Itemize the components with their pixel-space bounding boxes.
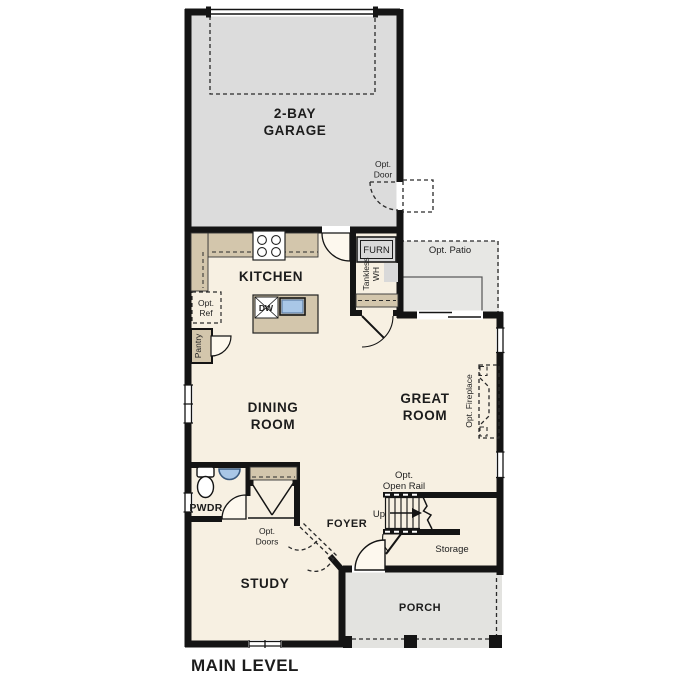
floor-plan: DW Opt. Ref Pantry FURN Tankless WH [0, 0, 687, 687]
dining-window [184, 385, 194, 423]
utility-shelf [356, 294, 398, 307]
porch-post-mid [404, 635, 417, 648]
utility-closet: FURN Tankless WH [356, 237, 398, 307]
toilet [197, 467, 214, 498]
opt-open-rail-label-line2: Open Rail [383, 481, 425, 492]
plan-title: MAIN LEVEL [191, 656, 299, 675]
opt-door-label-line2: Door [374, 170, 393, 180]
island-sink [280, 298, 305, 315]
great-room-window-lower [496, 452, 505, 478]
study-window [248, 640, 282, 648]
dishwasher-label: DW [259, 303, 274, 313]
opt-doors-label-line2: Doors [256, 537, 279, 547]
cooktop [253, 231, 285, 260]
floor-plan-svg: DW Opt. Ref Pantry FURN Tankless WH [0, 0, 687, 687]
great-room-label-line2: ROOM [403, 408, 447, 423]
patio-slider-door [417, 311, 483, 320]
porch-post-left [343, 636, 352, 648]
great-room-window-upper [496, 328, 505, 353]
opt-patio-label: Opt. Patio [429, 245, 471, 256]
opt-ref-label-line2: Ref [199, 308, 213, 318]
porch-post-right [489, 635, 502, 648]
storage-label: Storage [435, 544, 468, 555]
kitchen-label: KITCHEN [239, 269, 303, 284]
dining-label-line2: ROOM [251, 417, 295, 432]
opt-doors-label-line1: Opt. [259, 526, 275, 536]
pwdr-label: PWDR [189, 502, 222, 514]
great-room-label-line1: GREAT [400, 391, 449, 406]
opt-fireplace-label: Opt. Fireplace [464, 374, 474, 428]
tankless-label-line1: Tankless [361, 257, 371, 290]
water-heater [384, 263, 398, 282]
closet-shelf [250, 467, 297, 480]
up-label: Up [373, 509, 385, 520]
garage-door [206, 7, 378, 18]
foyer-label: FOYER [327, 518, 367, 530]
opt-ref-label-line1: Opt. [198, 298, 214, 308]
opt-door-label-line1: Opt. [375, 159, 391, 169]
study-label: STUDY [241, 576, 290, 591]
pantry: Pantry [191, 329, 212, 363]
kitchen-counter-left [191, 233, 208, 291]
pantry-label: Pantry [193, 333, 203, 358]
garage-label-line2: GARAGE [264, 123, 327, 138]
tankless-label-line2: WH [371, 267, 381, 281]
kitchen-island: DW [253, 295, 318, 333]
opt-open-rail-label-line1: Opt. [395, 470, 413, 481]
garage-label-line1: 2-BAY [274, 106, 316, 121]
garage-area [190, 12, 398, 230]
dining-label-line1: DINING [248, 400, 299, 415]
furnace-label: FURN [363, 245, 390, 256]
dishwasher: DW [255, 297, 278, 318]
porch-label: PORCH [399, 602, 441, 614]
